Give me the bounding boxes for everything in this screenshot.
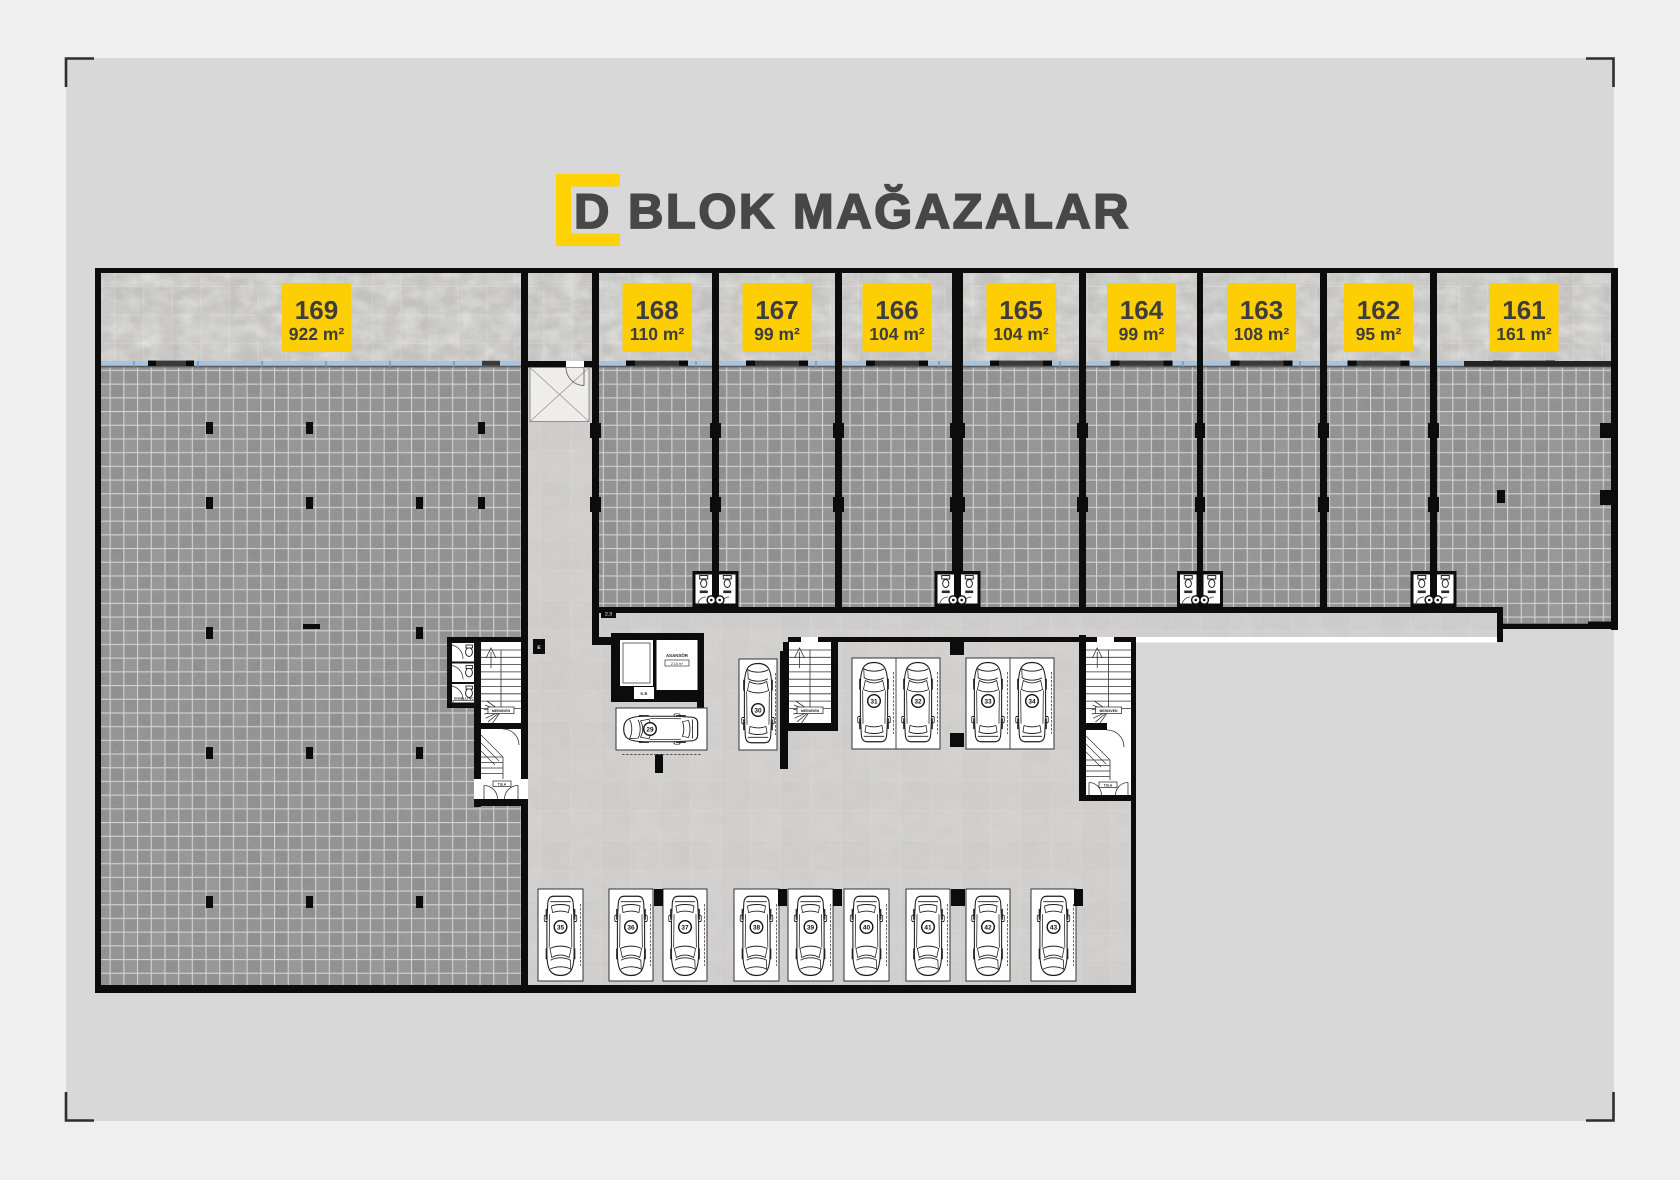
svg-text:38: 38 [753, 924, 761, 931]
svg-text:MERDİVEN: MERDİVEN [492, 709, 510, 713]
svg-text:33: 33 [984, 698, 992, 705]
svg-text:31: 31 [870, 698, 878, 705]
svg-text:161: 161 [1502, 295, 1545, 325]
svg-text:95 m²: 95 m² [1356, 324, 1402, 344]
svg-text:40: 40 [863, 924, 871, 931]
svg-text:165: 165 [999, 295, 1042, 325]
svg-text:39: 39 [807, 924, 815, 931]
svg-text:168: 168 [635, 295, 678, 325]
svg-text:43: 43 [1050, 924, 1058, 931]
svg-text:D BLOK MAĞAZALAR: D BLOK MAĞAZALAR [574, 184, 1131, 239]
svg-text:ASANSÖR: ASANSÖR [666, 653, 689, 658]
svg-text:K.B: K.B [641, 691, 648, 696]
svg-text:2.10 m²: 2.10 m² [671, 662, 684, 666]
svg-text:110 m²: 110 m² [630, 324, 685, 344]
svg-text:37: 37 [681, 924, 689, 931]
svg-text:29: 29 [646, 726, 654, 733]
svg-text:163: 163 [1240, 295, 1283, 325]
svg-text:169: 169 [295, 295, 338, 325]
svg-text:36: 36 [627, 924, 635, 931]
svg-text:30: 30 [754, 707, 762, 714]
svg-text:167: 167 [755, 295, 798, 325]
svg-text:34: 34 [1028, 698, 1036, 705]
svg-text:2.3: 2.3 [605, 612, 612, 618]
svg-text:104 m²: 104 m² [869, 324, 925, 344]
svg-text:161 m²: 161 m² [1496, 324, 1552, 344]
svg-text:41: 41 [924, 924, 932, 931]
svg-text:T.B.A: T.B.A [498, 783, 507, 787]
svg-text:MERDİVEN: MERDİVEN [1100, 709, 1118, 713]
svg-text:104 m²: 104 m² [993, 324, 1049, 344]
svg-text:108 m²: 108 m² [1234, 324, 1290, 344]
svg-text:42: 42 [984, 924, 992, 931]
svg-text:MERDİVEN: MERDİVEN [801, 709, 819, 713]
svg-text:922 m²: 922 m² [289, 324, 345, 344]
svg-text:ENGELLİ WC: ENGELLİ WC [454, 697, 474, 701]
svg-text:166: 166 [875, 295, 918, 325]
svg-text:99 m²: 99 m² [754, 324, 800, 344]
svg-text:35: 35 [557, 924, 565, 931]
svg-text:162: 162 [1357, 295, 1400, 325]
svg-text:T.B.A: T.B.A [1104, 784, 1113, 788]
svg-text:32: 32 [914, 698, 922, 705]
svg-text:164: 164 [1120, 295, 1164, 325]
svg-text:99 m²: 99 m² [1119, 324, 1165, 344]
